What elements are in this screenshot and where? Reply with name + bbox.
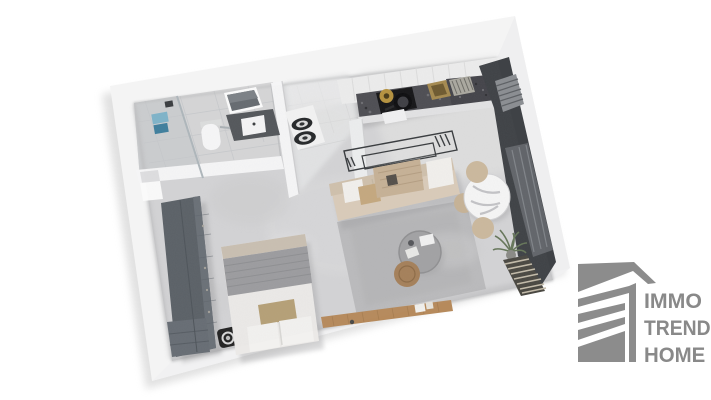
svg-text:HOME: HOME [644, 344, 705, 368]
svg-text:IMMO: IMMO [644, 289, 702, 313]
svg-text:TREND: TREND [644, 316, 711, 340]
